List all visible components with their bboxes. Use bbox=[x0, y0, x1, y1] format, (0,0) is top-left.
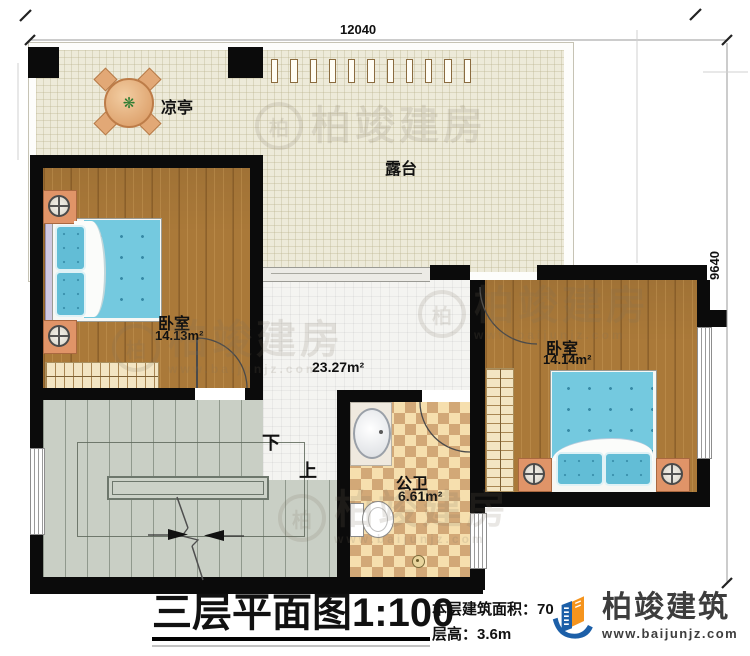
brand-building-icon bbox=[548, 588, 596, 646]
room-label-pavilion: 凉亭 bbox=[161, 94, 193, 118]
wall-bedroom-left-bottom-a bbox=[30, 388, 195, 400]
nightstand bbox=[43, 320, 77, 354]
window-stairwell-left bbox=[30, 448, 45, 535]
wall-center-right-upper bbox=[470, 280, 485, 513]
dimension-top: 12040 bbox=[340, 22, 376, 37]
room-area-bedroom-right: 14.14m² bbox=[543, 352, 591, 367]
floor-area-text: 本层建筑面积：70 bbox=[432, 598, 554, 619]
terrace-railing bbox=[271, 59, 471, 83]
plan-title-block: 三层平面图1:100 bbox=[152, 592, 454, 647]
floor-height-text: 层高：3.6m bbox=[432, 623, 511, 644]
plan-title: 三层平面图 bbox=[152, 591, 352, 635]
bed-left-pillow bbox=[55, 225, 86, 271]
room-area-bathroom: 6.61m² bbox=[398, 488, 442, 504]
bed-right-pillow bbox=[604, 452, 652, 486]
wall-bedroom-right-bottom bbox=[470, 492, 710, 507]
sink bbox=[353, 408, 391, 459]
wall-outer-left-lower bbox=[30, 533, 43, 580]
lamp-icon bbox=[48, 325, 70, 347]
nightstand bbox=[518, 458, 552, 492]
title-underline-thin bbox=[152, 645, 430, 647]
lamp-icon bbox=[661, 463, 683, 485]
wall-bedroom-left-bottom-b bbox=[245, 388, 263, 400]
bed-left-pillow bbox=[55, 271, 86, 317]
room-area-bedroom-left: 14.13m² bbox=[155, 328, 203, 343]
wall-bedroom-left-top bbox=[30, 155, 263, 168]
terrace-column-left bbox=[28, 47, 59, 78]
wall-bathroom-left bbox=[337, 390, 350, 577]
wardrobe-bedroom-right bbox=[486, 368, 514, 492]
lamp-icon bbox=[523, 463, 545, 485]
room-label-terrace: 露台 bbox=[385, 155, 417, 179]
stair-up-label: 上 bbox=[299, 457, 317, 483]
floor-plan-canvas: ❋ bbox=[0, 0, 750, 656]
wall-step-out bbox=[710, 310, 727, 327]
wall-center-right-lower bbox=[470, 567, 485, 590]
wall-bedroom-right-right-upper bbox=[697, 280, 710, 327]
dimension-right: 9640 bbox=[707, 251, 722, 280]
nightstand bbox=[656, 458, 690, 492]
wall-bathroom-top bbox=[337, 390, 422, 402]
wall-outer-left-upper bbox=[30, 155, 43, 448]
pavilion-table: ❋ bbox=[104, 78, 154, 128]
title-underline-thick bbox=[152, 637, 430, 641]
window-bathroom-right bbox=[470, 513, 487, 569]
floor-drain bbox=[412, 555, 425, 568]
window-bedroom-right bbox=[697, 327, 712, 459]
wall-bedroom-right-top-b bbox=[537, 265, 707, 280]
brand-name: 柏竣建筑 bbox=[602, 593, 738, 623]
wall-bedroom-left-right bbox=[250, 155, 263, 400]
wall-bedroom-right-top-a bbox=[430, 265, 470, 280]
nightstand bbox=[43, 190, 77, 224]
stair-handrail bbox=[107, 476, 269, 500]
stair-down-label: 下 bbox=[262, 429, 280, 455]
brand-logo: 柏竣建筑 www.baijunjz.com bbox=[548, 588, 738, 646]
brand-website: www.baijunjz.com bbox=[602, 626, 738, 641]
room-area-hall: 23.27m² bbox=[312, 359, 364, 375]
plant-icon: ❋ bbox=[123, 96, 136, 111]
bed-right-pillow bbox=[556, 452, 604, 486]
terrace-column-mid bbox=[228, 47, 263, 78]
sliding-door-terrace bbox=[263, 267, 430, 282]
lamp-icon bbox=[48, 195, 70, 217]
wardrobe-bedroom-left bbox=[45, 362, 159, 390]
hall-floor-upper bbox=[263, 278, 470, 390]
toilet bbox=[362, 501, 394, 538]
